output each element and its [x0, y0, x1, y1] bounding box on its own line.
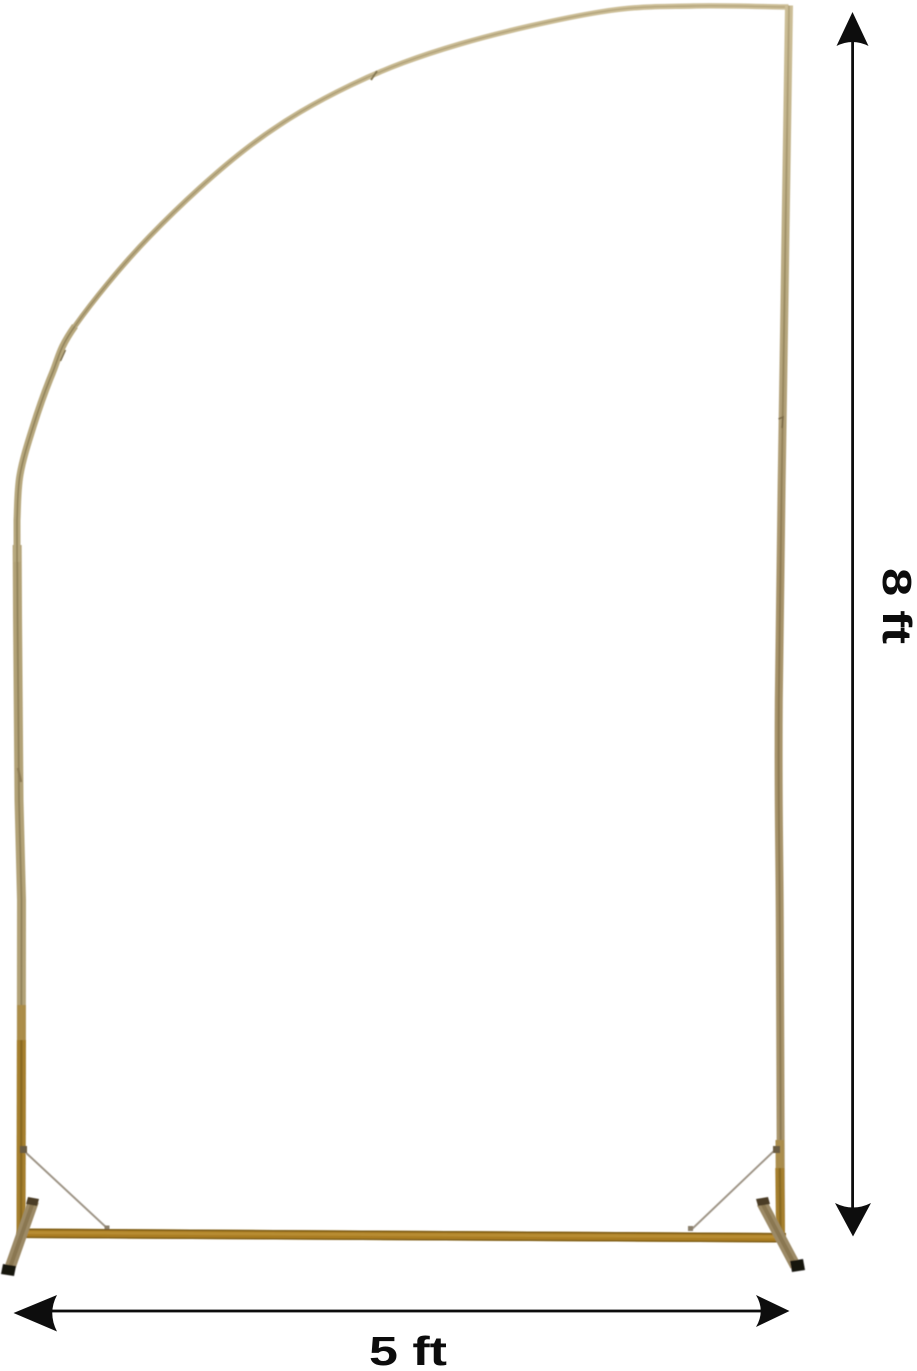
svg-text:8 ft: 8 ft: [874, 568, 917, 644]
svg-text:5 ft: 5 ft: [369, 1328, 447, 1371]
